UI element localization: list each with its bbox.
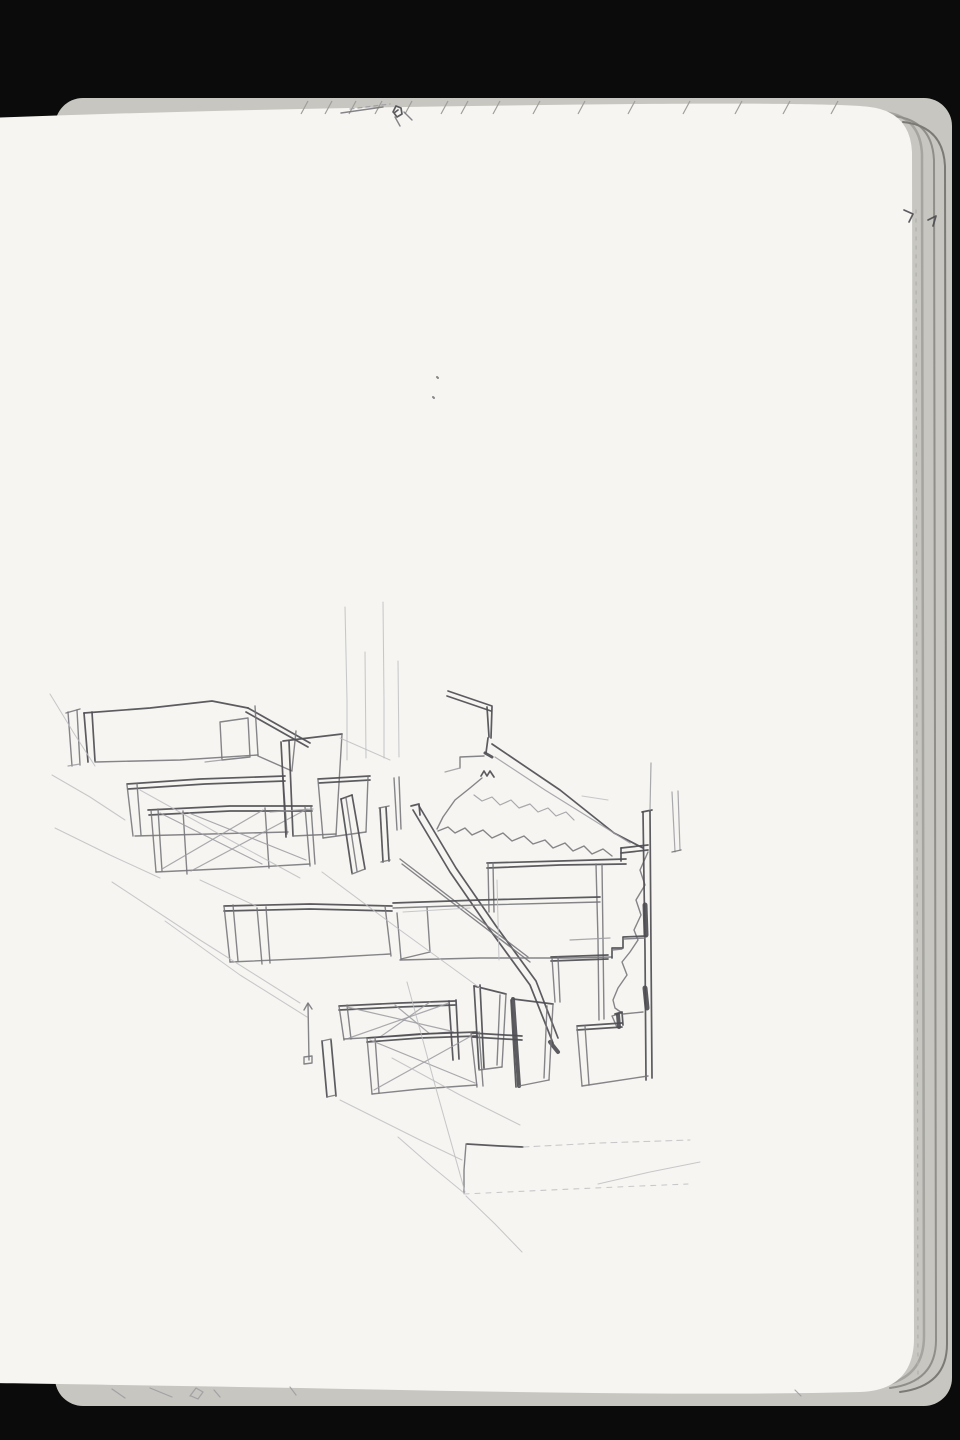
pencil-stroke xyxy=(612,949,622,950)
scan-canvas xyxy=(0,0,960,1440)
sketch-page xyxy=(0,104,914,1394)
pencil-stroke xyxy=(618,1015,619,1027)
pencil-stroke xyxy=(437,377,438,378)
sketchbook-scan xyxy=(0,0,960,1440)
pencil-stroke xyxy=(623,938,645,939)
pencil-stroke xyxy=(645,905,646,935)
pencil-stroke xyxy=(491,707,492,738)
pencil-stroke xyxy=(433,397,434,398)
pencil-stroke xyxy=(645,988,647,1008)
pencil-stroke xyxy=(308,1004,309,1060)
